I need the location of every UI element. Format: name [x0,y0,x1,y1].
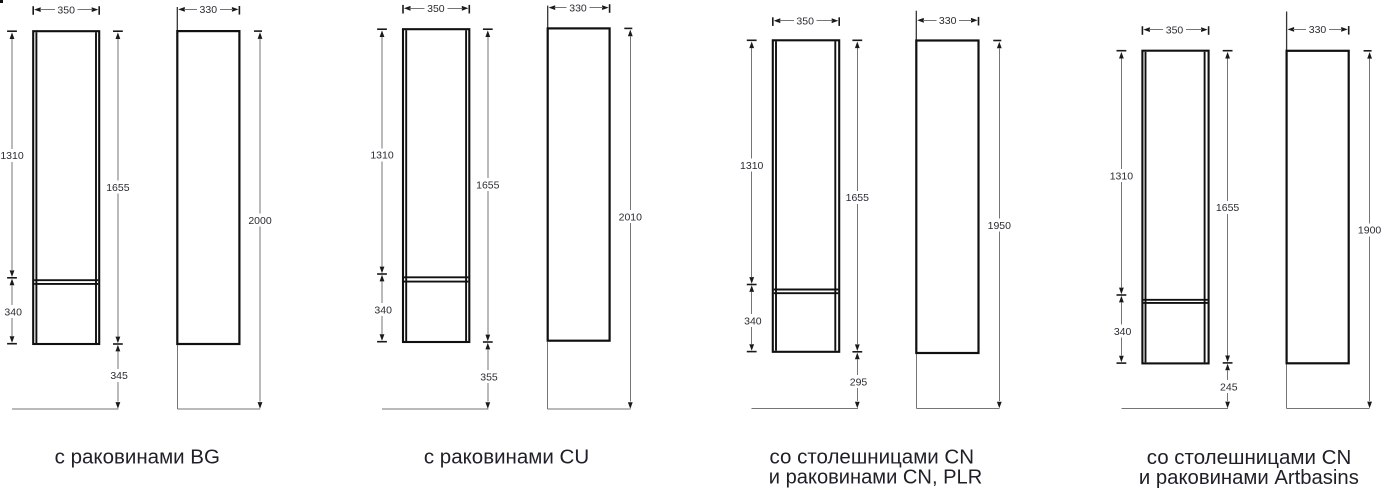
svg-text:2010: 2010 [619,211,643,223]
svg-text:330: 330 [939,15,957,27]
svg-text:350: 350 [427,3,445,15]
svg-text:1310: 1310 [370,150,394,162]
svg-text:340: 340 [4,307,22,319]
svg-text:295: 295 [850,376,868,388]
svg-text:330: 330 [569,2,587,14]
svg-text:1655: 1655 [106,182,130,194]
svg-text:340: 340 [744,315,762,327]
svg-text:1310: 1310 [740,160,764,172]
svg-text:1655: 1655 [476,179,500,191]
svg-text:с раковинами BG: с раковинами BG [55,446,220,469]
svg-text:2000: 2000 [248,215,272,227]
svg-text:1310: 1310 [0,150,24,162]
svg-text:и раковинами Artbasins: и раковинами Artbasins [1139,467,1359,489]
svg-text:со столешницами CN: со столешницами CN [770,446,975,469]
svg-text:340: 340 [1114,326,1132,338]
svg-text:1310: 1310 [1110,170,1134,182]
svg-text:350: 350 [57,4,75,16]
svg-text:245: 245 [1220,381,1238,393]
svg-text:330: 330 [200,4,218,16]
svg-text:340: 340 [374,304,392,316]
svg-text:и раковинами CN, PLR: и раковинами CN, PLR [769,467,982,489]
svg-text:355: 355 [480,371,498,383]
svg-text:350: 350 [1166,24,1184,36]
svg-text:1655: 1655 [1216,202,1240,214]
svg-text:со столешницами CN: со столешницами CN [1147,446,1352,469]
svg-text:350: 350 [796,16,814,28]
svg-text:1900: 1900 [1358,225,1381,237]
svg-text:1950: 1950 [988,220,1012,232]
svg-text:1655: 1655 [846,192,870,204]
svg-text:345: 345 [110,370,128,382]
svg-text:330: 330 [1309,24,1327,36]
svg-text:с раковинами CU: с раковинами CU [424,445,589,468]
